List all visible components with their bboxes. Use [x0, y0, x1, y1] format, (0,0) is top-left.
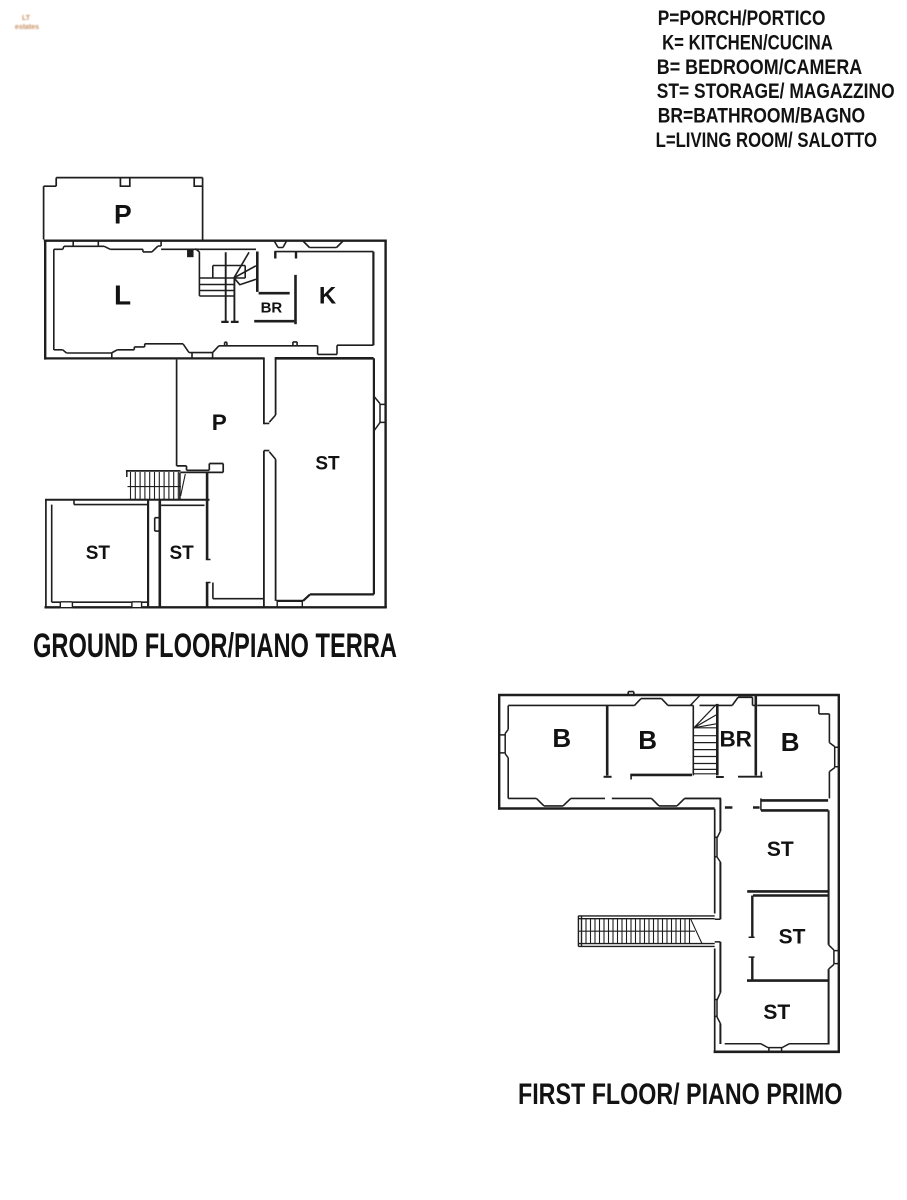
svg-text:P=PORCH/PORTICO: P=PORCH/PORTICO	[658, 6, 826, 30]
svg-text:BR: BR	[719, 727, 752, 752]
svg-text:ST: ST	[767, 838, 794, 861]
svg-text:LT: LT	[22, 15, 31, 22]
svg-text:ST: ST	[169, 543, 194, 564]
svg-text:ST: ST	[763, 1001, 790, 1024]
svg-text:GROUND FLOOR/PIANO TERRA: GROUND FLOOR/PIANO TERRA	[33, 627, 397, 665]
svg-text:B: B	[552, 723, 571, 753]
svg-text:ST: ST	[779, 926, 806, 949]
svg-text:K= KITCHEN/CUCINA: K= KITCHEN/CUCINA	[662, 30, 833, 54]
svg-text:B: B	[781, 727, 800, 757]
svg-text:P: P	[212, 410, 227, 435]
svg-text:L=LIVING ROOM/ SALOTTO: L=LIVING ROOM/ SALOTTO	[656, 128, 877, 152]
svg-text:ST: ST	[86, 543, 111, 564]
svg-text:FIRST FLOOR/ PIANO PRIMO: FIRST FLOOR/ PIANO PRIMO	[518, 1078, 843, 1111]
svg-text:estates: estates	[15, 24, 39, 31]
svg-text:B: B	[638, 725, 657, 755]
svg-text:BR: BR	[261, 299, 283, 316]
svg-text:B= BEDROOM/CAMERA: B= BEDROOM/CAMERA	[657, 55, 862, 79]
svg-text:BR=BATHROOM/BAGNO: BR=BATHROOM/BAGNO	[658, 104, 866, 128]
svg-text:K: K	[319, 282, 337, 309]
svg-text:P: P	[114, 199, 132, 229]
svg-text:L: L	[114, 279, 131, 310]
svg-text:ST: ST	[315, 453, 340, 474]
svg-text:ST= STORAGE/ MAGAZZINO: ST= STORAGE/ MAGAZZINO	[657, 79, 895, 103]
